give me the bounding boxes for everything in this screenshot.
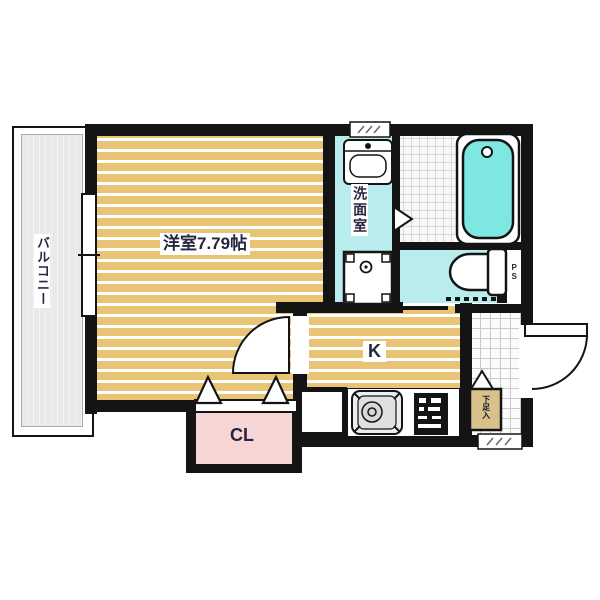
bathtub-room-floor [455,130,521,246]
wall-segment [323,136,335,310]
wall-segment [460,303,472,437]
floor-plan: バルコニー 洋室7.79帖 洗面室 K CL PS 下足入 [0,0,600,600]
balcony-floor [21,134,83,427]
wall-segment [521,124,533,447]
closet-label: CL [226,425,258,446]
balcony-window-icon [81,193,97,317]
wall-segment [392,136,400,303]
shoe-box-label: 下足入 [481,394,490,420]
wall-segment [85,124,533,136]
balcony-label: バルコニー [34,234,50,308]
wall-segment [497,248,507,303]
kitchen-counter [347,388,460,437]
main-room-label: 洋室7.79帖 [160,233,250,255]
entrance-floor [470,308,523,438]
wall-segment [85,400,197,412]
toilet-floor [395,248,499,303]
wall-segment [392,242,533,250]
kitchen-doorway [291,316,309,374]
washroom-label: 洗面室 [351,184,368,236]
closet-door-track [194,399,298,413]
bathroom-floor [395,130,460,245]
pipe-space-label: PS [509,262,518,282]
entrance-doorway [519,325,535,398]
kitchen-label: K [363,341,386,362]
wall-segment [403,306,448,310]
fridge-space [297,387,347,437]
